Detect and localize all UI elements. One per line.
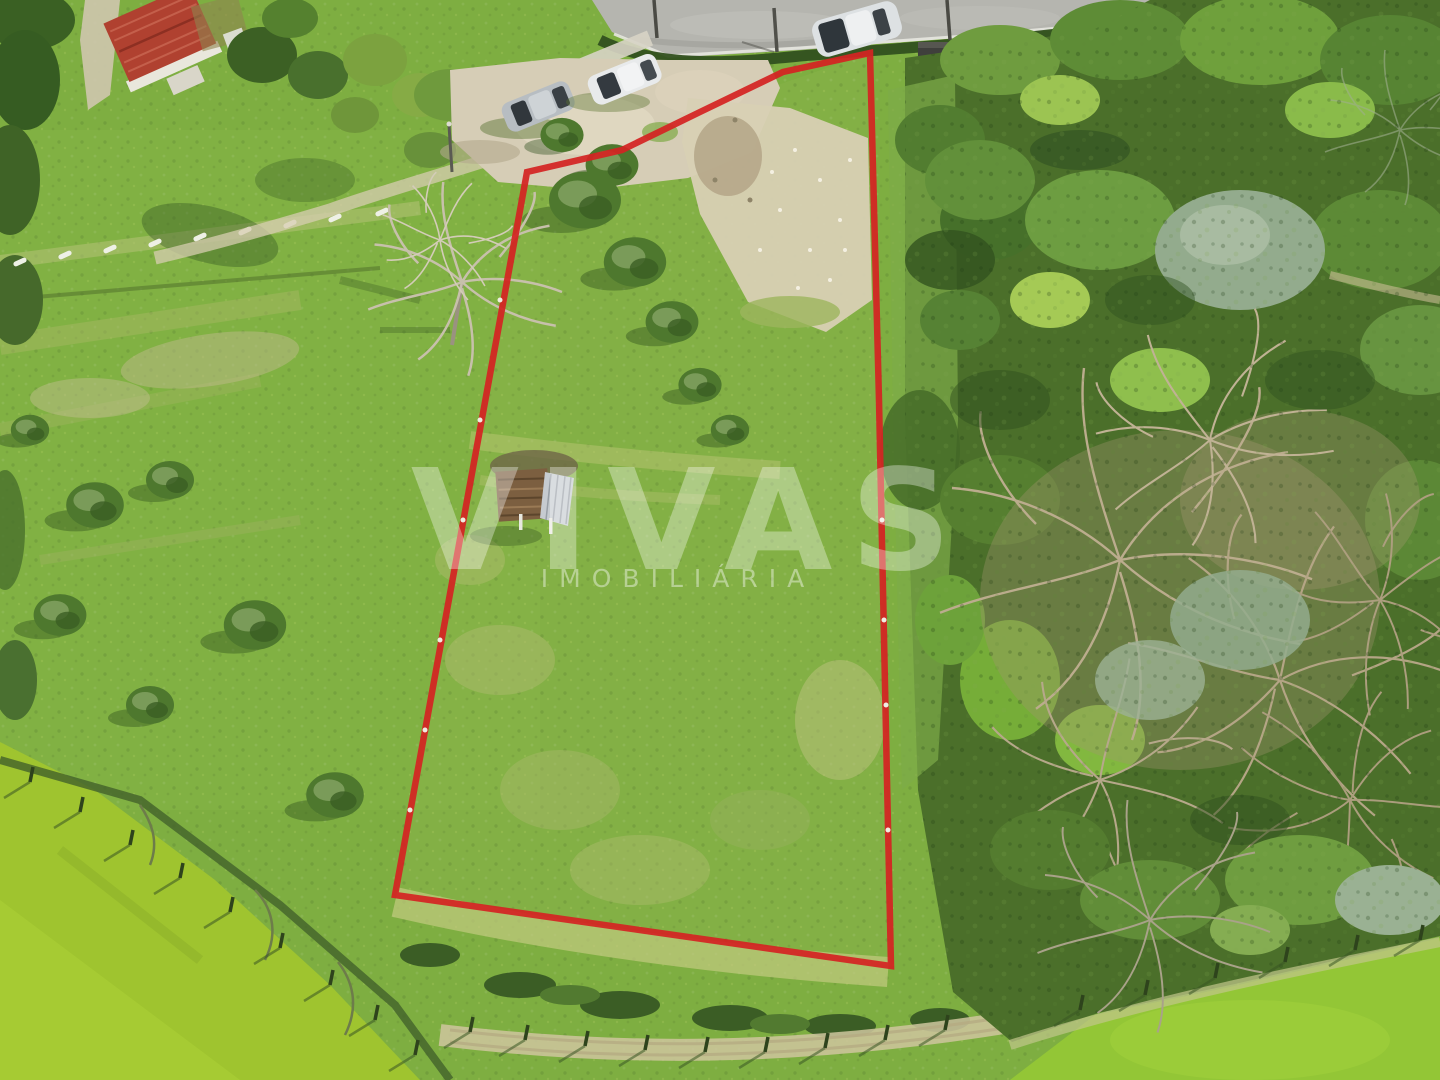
aerial-photo: VIVAS IMOBILIÁRIA	[0, 0, 1440, 1080]
forest-right	[880, 0, 1440, 1042]
